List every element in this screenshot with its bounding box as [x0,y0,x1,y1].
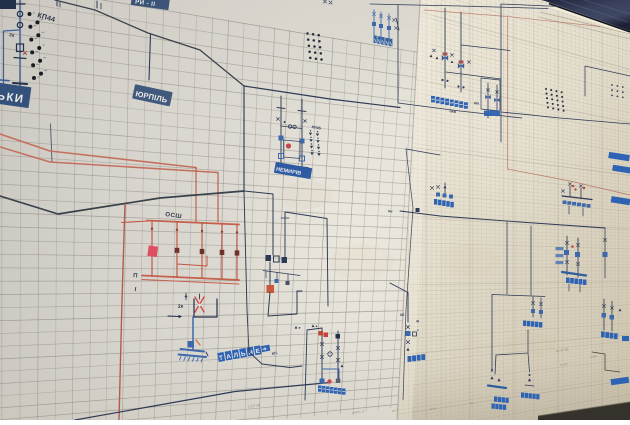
svg-text:пн: пн [388,209,393,214]
svg-text:кл: кл [470,401,474,405]
svg-text:П: П [133,273,138,279]
svg-text:2к: 2к [178,304,184,310]
svg-text:а тп: а тп [430,406,437,411]
